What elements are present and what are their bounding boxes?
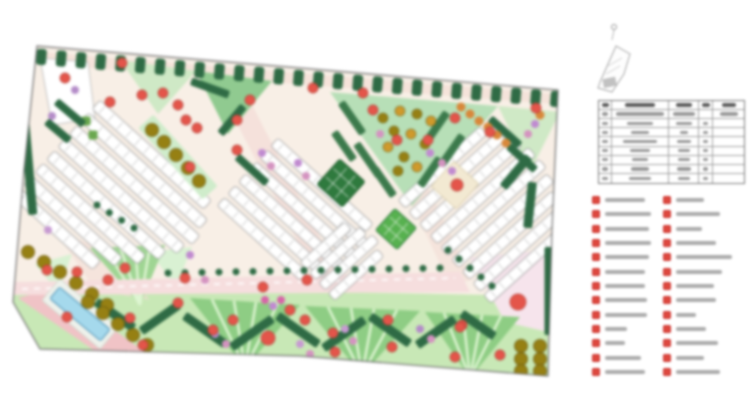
illegible-text bbox=[678, 177, 690, 181]
legend-item bbox=[592, 225, 651, 233]
legend-item bbox=[663, 282, 732, 290]
illegible-text bbox=[720, 112, 738, 116]
table-cell bbox=[669, 110, 699, 118]
legend-item bbox=[592, 239, 651, 247]
legend-item bbox=[592, 296, 651, 304]
red-flower-icon bbox=[663, 210, 671, 218]
table-cell bbox=[669, 156, 699, 164]
plant-legend-column-1 bbox=[592, 196, 651, 382]
red-flower-icon bbox=[592, 311, 600, 319]
table-header-row bbox=[599, 101, 744, 110]
illegible-label bbox=[605, 241, 651, 245]
table-cell bbox=[599, 128, 612, 136]
legend-item bbox=[663, 296, 732, 304]
table-cell bbox=[713, 101, 744, 109]
landscape-masterplan-screenshot bbox=[0, 0, 750, 403]
table-row bbox=[599, 147, 744, 156]
legend-item bbox=[663, 325, 732, 333]
north-arrow-line bbox=[612, 30, 614, 40]
table-cell bbox=[612, 128, 669, 136]
illegible-label bbox=[676, 298, 716, 302]
red-flower-icon bbox=[663, 282, 671, 290]
table-cell bbox=[713, 110, 744, 118]
illegible-label bbox=[676, 255, 732, 259]
red-flower-icon bbox=[663, 339, 671, 347]
illegible-text bbox=[703, 140, 708, 144]
red-flower-icon bbox=[663, 225, 671, 233]
red-flower-icon bbox=[592, 282, 600, 290]
illegible-text bbox=[602, 158, 608, 162]
red-flower-icon bbox=[592, 296, 600, 304]
legend-item bbox=[663, 268, 732, 276]
legend-item bbox=[592, 253, 651, 261]
red-flower-icon bbox=[663, 296, 671, 304]
table-cell bbox=[669, 147, 699, 155]
table-row bbox=[599, 165, 744, 174]
illegible-label bbox=[605, 227, 649, 231]
red-flower-icon bbox=[592, 253, 600, 261]
illegible-label bbox=[676, 370, 720, 374]
illegible-text bbox=[616, 112, 664, 116]
table-cell bbox=[699, 128, 713, 136]
red-flower-icon bbox=[592, 339, 600, 347]
illegible-text bbox=[702, 103, 710, 107]
table-cell bbox=[612, 174, 669, 183]
illegible-text bbox=[602, 122, 608, 126]
red-flower-icon bbox=[663, 311, 671, 319]
table-cell bbox=[713, 156, 744, 164]
legend-item bbox=[592, 368, 651, 376]
legend-item bbox=[592, 311, 651, 319]
legend-item bbox=[663, 225, 732, 233]
illegible-text bbox=[677, 140, 691, 144]
table-cell bbox=[599, 137, 612, 145]
illegible-text bbox=[703, 167, 708, 171]
illegible-text bbox=[602, 167, 608, 171]
legend-item bbox=[663, 239, 732, 247]
legend-item bbox=[592, 282, 651, 290]
table-row bbox=[599, 110, 744, 119]
illegible-label bbox=[605, 198, 645, 202]
illegible-text bbox=[631, 167, 649, 171]
table-cell bbox=[599, 165, 612, 173]
table-cell bbox=[713, 137, 744, 145]
red-flower-icon bbox=[663, 368, 671, 376]
table-cell bbox=[699, 101, 713, 109]
illegible-text bbox=[602, 131, 608, 135]
illegible-text bbox=[676, 122, 692, 126]
table-row bbox=[599, 156, 744, 165]
illegible-label bbox=[605, 255, 649, 259]
table-row bbox=[599, 137, 744, 146]
legend-item bbox=[592, 354, 651, 362]
illegible-label bbox=[605, 284, 645, 288]
red-flower-icon bbox=[663, 196, 671, 204]
table-cell bbox=[599, 119, 612, 127]
table-cell bbox=[599, 110, 612, 118]
table-cell bbox=[599, 156, 612, 164]
table-cell bbox=[612, 119, 669, 127]
illegible-text bbox=[678, 158, 690, 162]
table-cell bbox=[612, 165, 669, 173]
table-cell bbox=[713, 128, 744, 136]
illegible-text bbox=[629, 177, 651, 181]
legend-item bbox=[592, 268, 651, 276]
table-cell bbox=[612, 147, 669, 155]
illegible-text bbox=[677, 167, 691, 171]
illegible-text bbox=[703, 131, 708, 135]
red-flower-icon bbox=[663, 239, 671, 247]
table-cell bbox=[669, 174, 699, 183]
illegible-text bbox=[631, 131, 649, 135]
red-flower-icon bbox=[592, 268, 600, 276]
red-flower-icon bbox=[663, 325, 671, 333]
illegible-text bbox=[722, 103, 736, 107]
legend-item bbox=[592, 210, 651, 218]
red-flower-icon bbox=[592, 225, 600, 233]
illegible-label bbox=[676, 270, 722, 274]
table-cell bbox=[713, 119, 744, 127]
table-cell bbox=[612, 137, 669, 145]
table-cell bbox=[699, 137, 713, 145]
illegible-label bbox=[676, 356, 704, 360]
legend-item bbox=[663, 354, 732, 362]
red-flower-icon bbox=[592, 239, 600, 247]
illegible-text bbox=[602, 177, 608, 181]
table-cell bbox=[713, 174, 744, 183]
illegible-text bbox=[673, 112, 695, 116]
illegible-label bbox=[676, 284, 714, 288]
illegible-label bbox=[605, 270, 645, 274]
illegible-label bbox=[605, 212, 651, 216]
table-cell bbox=[599, 174, 612, 183]
illegible-text bbox=[602, 112, 608, 116]
table-cell bbox=[713, 165, 744, 173]
location-keymap bbox=[590, 20, 646, 100]
illegible-label bbox=[676, 241, 716, 245]
illegible-label bbox=[676, 313, 696, 317]
spec-table bbox=[598, 100, 745, 184]
legend-item bbox=[592, 196, 651, 204]
red-flower-icon bbox=[663, 268, 671, 276]
table-cell bbox=[699, 174, 713, 183]
illegible-text bbox=[630, 149, 650, 153]
legend-item bbox=[592, 325, 651, 333]
illegible-label bbox=[676, 327, 706, 331]
illegible-text bbox=[625, 103, 655, 107]
illegible-text bbox=[602, 149, 608, 153]
table-cell bbox=[699, 156, 713, 164]
table-row bbox=[599, 119, 744, 128]
illegible-text bbox=[703, 158, 708, 162]
table-cell bbox=[669, 119, 699, 127]
illegible-text bbox=[703, 122, 708, 126]
illegible-label bbox=[605, 356, 641, 360]
table-cell bbox=[699, 165, 713, 173]
illegible-label bbox=[676, 341, 718, 345]
illegible-text bbox=[680, 131, 688, 135]
table-cell bbox=[699, 147, 713, 155]
table-cell bbox=[699, 119, 713, 127]
table-cell bbox=[599, 101, 612, 109]
illegible-text bbox=[703, 177, 708, 181]
red-flower-icon bbox=[663, 354, 671, 362]
table-cell bbox=[699, 110, 713, 118]
legend-item bbox=[663, 339, 732, 347]
table-cell bbox=[669, 128, 699, 136]
illegible-label bbox=[676, 212, 720, 216]
red-flower-icon bbox=[592, 354, 600, 362]
red-flower-icon bbox=[592, 325, 600, 333]
table-cell bbox=[669, 137, 699, 145]
illegible-text bbox=[678, 149, 690, 153]
legend-item bbox=[592, 339, 651, 347]
table-cell bbox=[669, 101, 699, 109]
table-cell bbox=[612, 156, 669, 164]
legend-panel bbox=[0, 0, 750, 403]
illegible-text bbox=[676, 103, 692, 107]
illegible-text bbox=[602, 103, 609, 107]
illegible-label bbox=[676, 198, 704, 202]
illegible-text bbox=[623, 140, 657, 144]
table-cell bbox=[713, 147, 744, 155]
red-flower-icon bbox=[592, 196, 600, 204]
illegible-text bbox=[632, 158, 648, 162]
legend-item bbox=[663, 311, 732, 319]
red-flower-icon bbox=[592, 368, 600, 376]
plant-legend-column-2 bbox=[663, 196, 732, 382]
table-cell bbox=[612, 110, 669, 118]
illegible-label bbox=[605, 370, 645, 374]
illegible-label bbox=[605, 327, 627, 331]
legend-item bbox=[663, 368, 732, 376]
table-row bbox=[599, 174, 744, 183]
red-flower-icon bbox=[592, 210, 600, 218]
illegible-text bbox=[703, 149, 708, 153]
illegible-label bbox=[676, 227, 702, 231]
table-cell bbox=[599, 147, 612, 155]
table-cell bbox=[669, 165, 699, 173]
north-arrow-icon bbox=[612, 25, 617, 30]
legend-item bbox=[663, 196, 732, 204]
table-cell bbox=[612, 101, 669, 109]
illegible-label bbox=[605, 298, 647, 302]
legend-item bbox=[663, 253, 732, 261]
illegible-text bbox=[627, 122, 653, 126]
table-row bbox=[599, 128, 744, 137]
red-flower-icon bbox=[663, 253, 671, 261]
illegible-text bbox=[602, 140, 608, 144]
illegible-label bbox=[605, 313, 647, 317]
legend-item bbox=[663, 210, 732, 218]
illegible-label bbox=[605, 341, 625, 345]
